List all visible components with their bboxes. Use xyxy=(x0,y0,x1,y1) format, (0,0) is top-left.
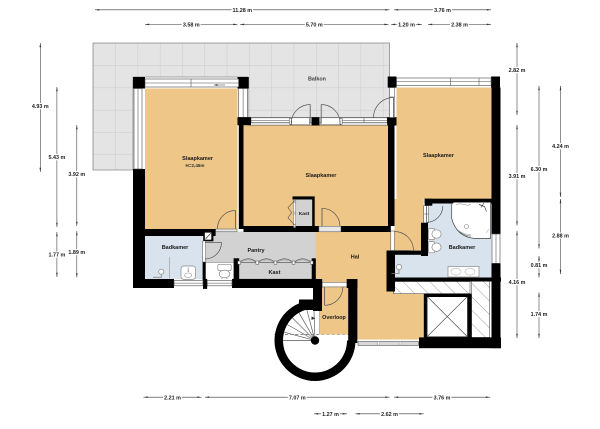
svg-text:Badkamer: Badkamer xyxy=(449,245,476,251)
svg-text:0.81 m: 0.81 m xyxy=(531,263,548,269)
svg-text:7.07 m: 7.07 m xyxy=(289,395,306,401)
svg-text:3.76 m: 3.76 m xyxy=(434,8,451,14)
svg-text:4.93 m: 4.93 m xyxy=(32,104,49,110)
svg-text:1.27 m: 1.27 m xyxy=(322,412,339,418)
svg-text:H=2,46m: H=2,46m xyxy=(185,163,204,168)
svg-text:3.76 m: 3.76 m xyxy=(434,395,451,401)
svg-text:Slaapkamer: Slaapkamer xyxy=(182,156,214,162)
svg-text:5.70 m: 5.70 m xyxy=(306,23,323,29)
svg-text:6.30 m: 6.30 m xyxy=(531,167,548,173)
svg-text:3.91 m: 3.91 m xyxy=(509,174,526,180)
svg-text:Balkon: Balkon xyxy=(308,76,326,82)
svg-text:5.43 m: 5.43 m xyxy=(49,155,66,161)
svg-text:1.74 m: 1.74 m xyxy=(531,312,548,318)
svg-text:Slaapkamer: Slaapkamer xyxy=(306,173,338,179)
svg-text:2.82 m: 2.82 m xyxy=(509,68,526,74)
svg-text:1.20 m: 1.20 m xyxy=(398,23,415,29)
svg-text:Badkamer: Badkamer xyxy=(162,245,189,251)
svg-text:Slaapkamer: Slaapkamer xyxy=(423,153,455,159)
svg-text:2.62 m: 2.62 m xyxy=(381,412,398,418)
svg-text:2.38 m: 2.38 m xyxy=(451,23,468,29)
svg-text:4.16 m: 4.16 m xyxy=(509,280,526,286)
svg-text:3.92 m: 3.92 m xyxy=(68,172,85,178)
svg-text:2.21 m: 2.21 m xyxy=(164,395,181,401)
svg-text:Hal: Hal xyxy=(351,254,360,260)
svg-text:Kast: Kast xyxy=(269,270,281,276)
svg-text:3.58 m: 3.58 m xyxy=(183,23,200,29)
svg-text:2.88 m: 2.88 m xyxy=(552,233,569,239)
svg-text:Kast: Kast xyxy=(299,211,310,217)
svg-text:1.89 m: 1.89 m xyxy=(68,250,85,256)
svg-text:Pantry: Pantry xyxy=(247,248,265,254)
svg-text:Overloop: Overloop xyxy=(322,315,346,321)
svg-text:1.77 m: 1.77 m xyxy=(49,252,66,258)
svg-text:4.24 m: 4.24 m xyxy=(552,144,569,150)
svg-text:11.28 m: 11.28 m xyxy=(233,8,253,14)
